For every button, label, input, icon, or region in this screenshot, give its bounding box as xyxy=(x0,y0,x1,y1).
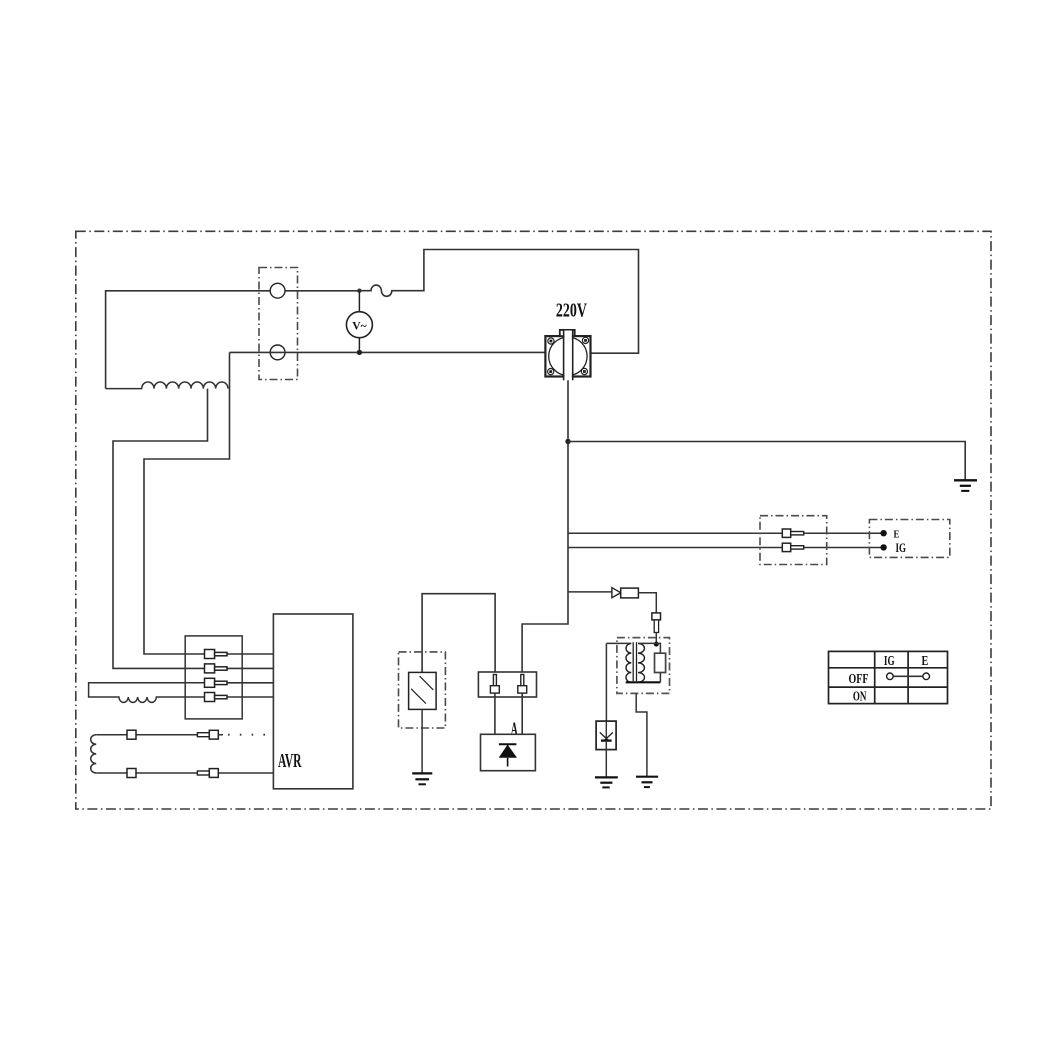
svg-text:ON: ON xyxy=(853,690,867,705)
svg-text:E: E xyxy=(922,654,929,669)
svg-text:IG: IG xyxy=(896,541,907,555)
svg-text:E: E xyxy=(894,529,900,540)
svg-text:V~: V~ xyxy=(352,319,367,333)
svg-text:OFF: OFF xyxy=(849,672,869,687)
svg-text:AVR: AVR xyxy=(278,751,302,772)
svg-text:220V: 220V xyxy=(556,300,587,322)
svg-text:IG: IG xyxy=(884,654,895,669)
